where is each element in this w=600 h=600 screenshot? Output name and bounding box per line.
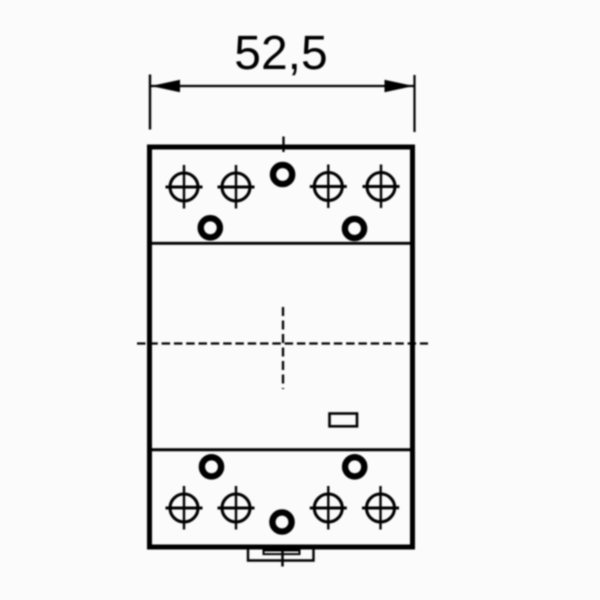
svg-text:52,5: 52,5: [234, 27, 327, 80]
